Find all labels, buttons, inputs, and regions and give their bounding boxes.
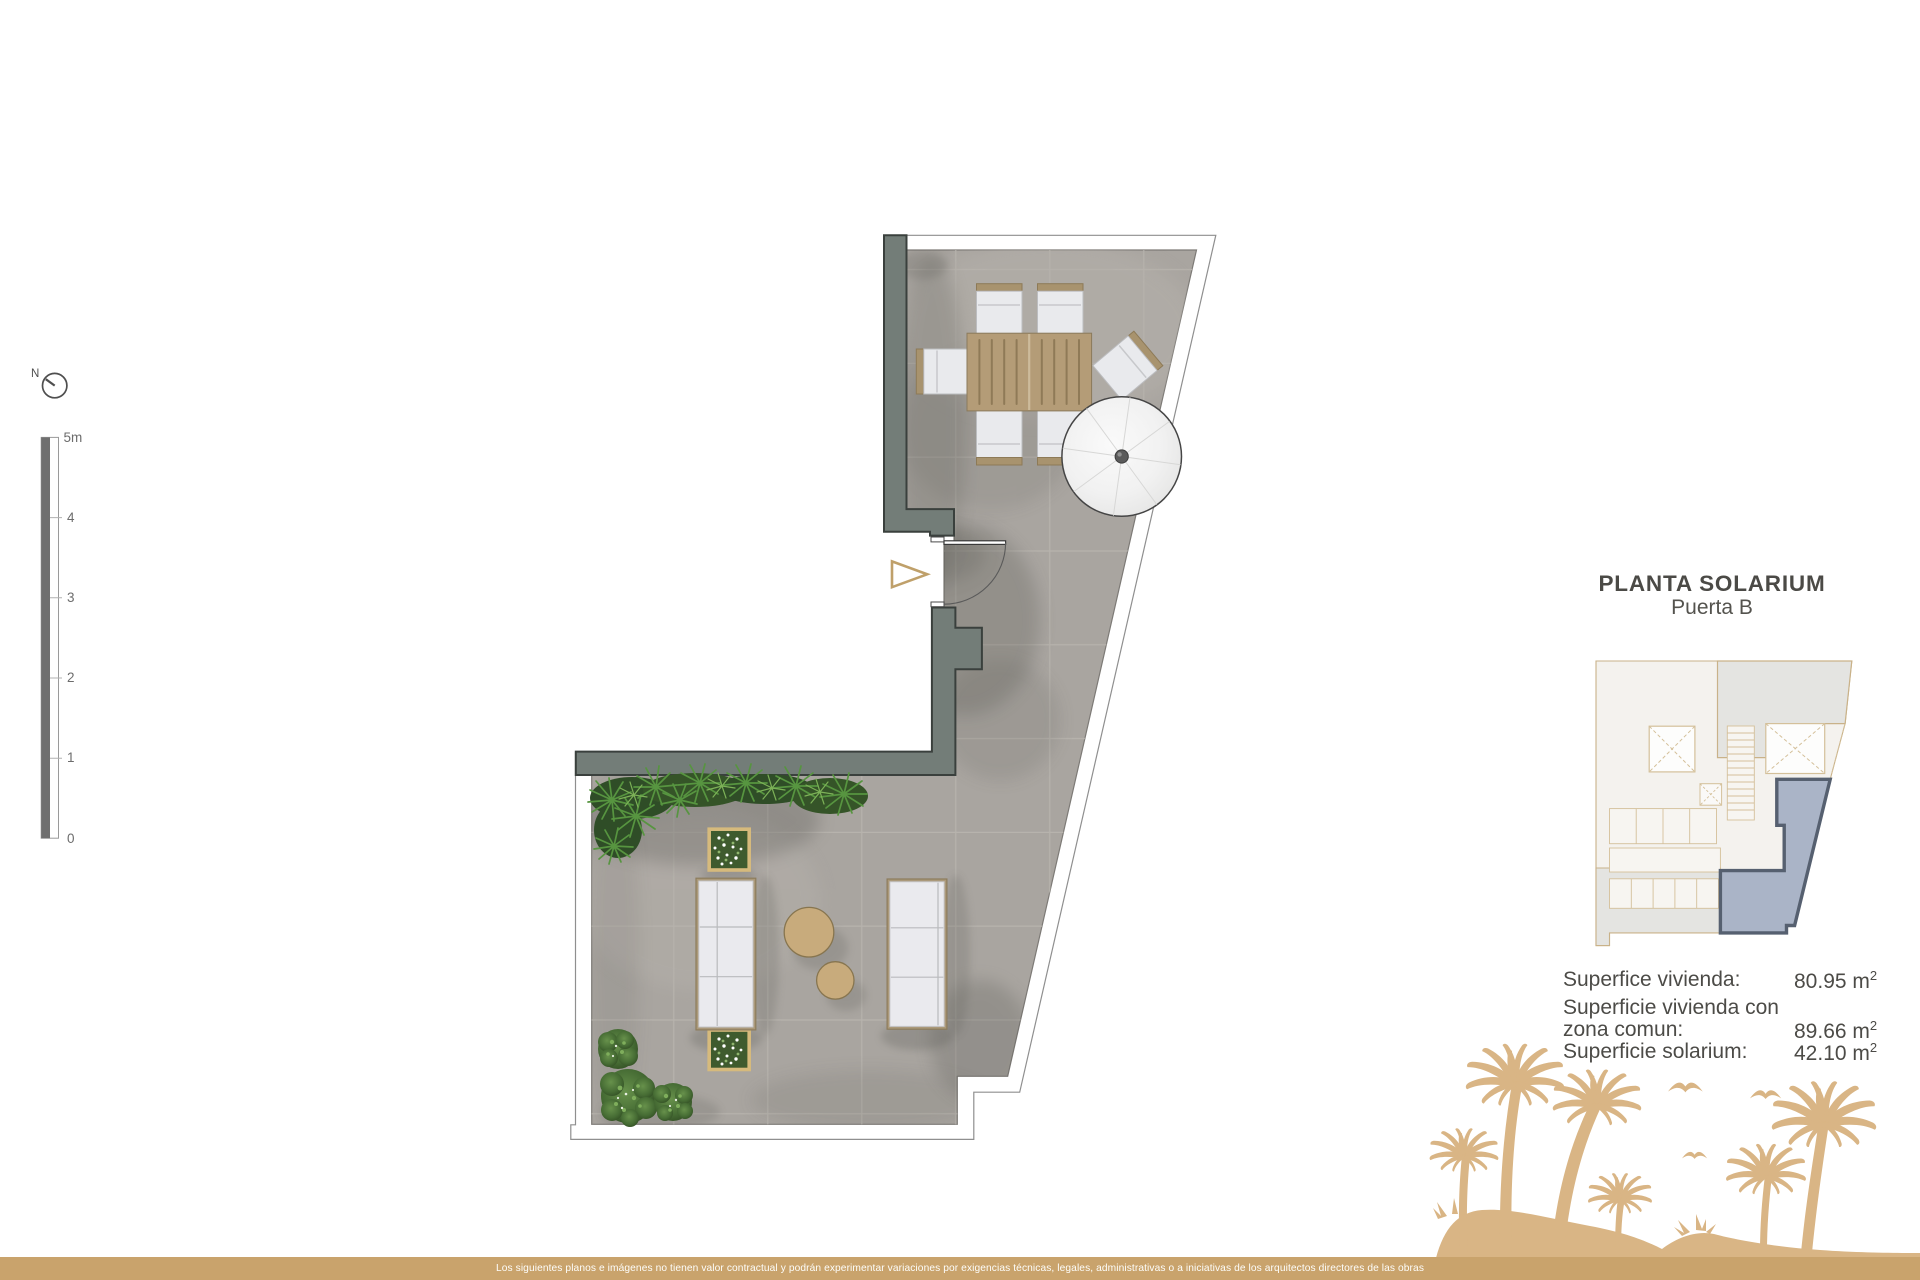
svg-text:0: 0 [67,831,75,846]
svg-text:4: 4 [67,510,75,525]
svg-text:5m: 5m [64,430,83,445]
svg-text:2: 2 [67,670,75,685]
svg-text:1: 1 [67,750,75,765]
svg-text:N: N [31,368,39,380]
svg-text:3: 3 [67,590,75,605]
